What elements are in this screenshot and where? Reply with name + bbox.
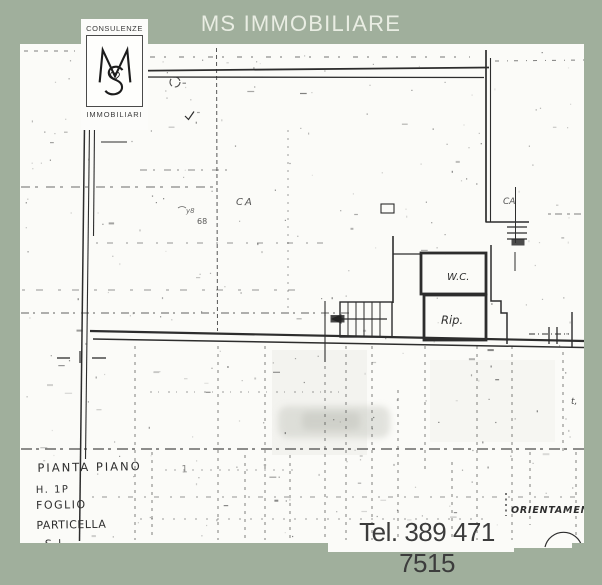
note-piano-num: H. 1P (36, 484, 70, 496)
logo-monogram-box (86, 35, 143, 107)
pencil-mark: CA (236, 197, 254, 208)
ms-monogram (90, 39, 140, 103)
note-pianta-piano: PIANTA PIANO (37, 459, 142, 475)
pencil-mark: y8 (185, 207, 195, 215)
listing-image-frame: W.C. Rip. CA CA y8 68 t, PIANTA PIANO 1 … (0, 0, 602, 585)
wc-label: W.C. (447, 272, 469, 283)
rip-label: Rip. (441, 313, 463, 327)
logo-bottom-text: IMMOBILIARI (86, 110, 142, 119)
phone-number: Tel. 389 471 7515 (336, 517, 518, 579)
note-clipped: S l (45, 537, 63, 550)
page-title: MS IMMOBILIARE (0, 11, 602, 37)
orientamento-label: ORIENTAMEN (511, 505, 589, 516)
note-particella: PARTICELLA (36, 518, 106, 532)
note-foglio: FOGLIO (36, 498, 87, 512)
pencil-mark: t, (571, 397, 577, 407)
pencil-mark: CA (503, 197, 515, 207)
pencil-mark: 68 (197, 217, 207, 226)
svg-text:1: 1 (181, 464, 188, 475)
scan-shading (272, 350, 367, 455)
